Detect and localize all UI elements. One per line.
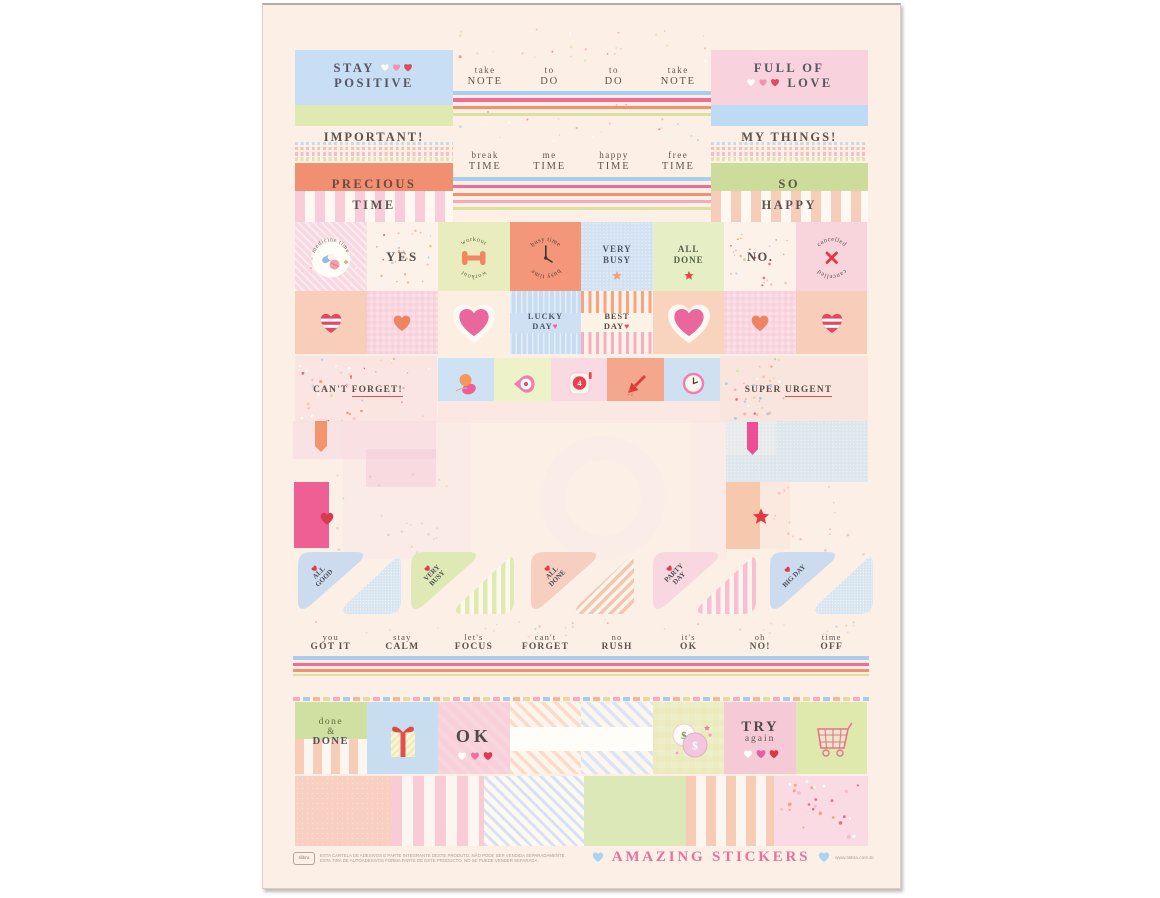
svg-text:workout: workout [460, 235, 489, 246]
svg-text:cancelled: cancelled [815, 235, 848, 247]
svg-text:busy time: busy time [529, 267, 562, 280]
svg-text:workout: workout [459, 269, 488, 280]
svg-text:$: $ [692, 739, 698, 753]
svg-text:cancelled: cancelled [815, 267, 848, 279]
